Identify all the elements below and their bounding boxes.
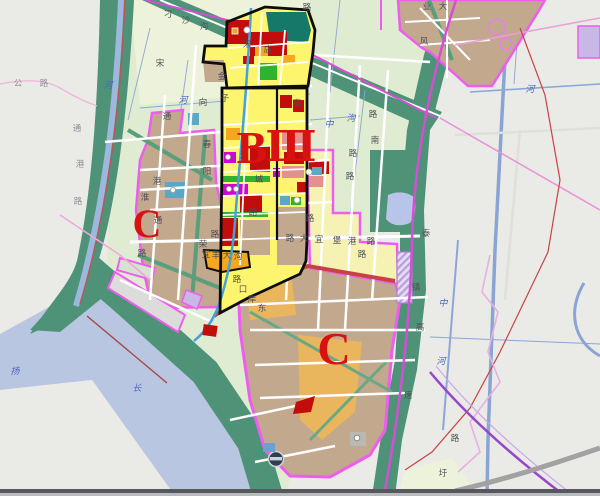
road-label-34: 路 [367, 236, 376, 246]
road-label-52: 泰 [422, 228, 431, 238]
map-rect [240, 220, 270, 255]
road-label-3: 港 [76, 159, 85, 169]
road-label-27: 路 [211, 229, 220, 239]
zone-label-C-west: C [133, 201, 162, 246]
road-label-39: 口 [239, 284, 248, 294]
road-label-33: 港 [348, 236, 357, 246]
lavender-block-ne [578, 26, 600, 58]
canal-label-zhong-2: 中 [324, 119, 334, 129]
road-label-55: 圩 [439, 468, 448, 478]
road-label-41: 东 [258, 303, 267, 313]
zone-label-C-south: C [317, 323, 350, 374]
road-label-43: 路 [306, 213, 315, 223]
map-rect [283, 55, 295, 63]
red-block-field [202, 324, 217, 337]
road-label-14: 路 [303, 2, 312, 12]
road-label-56: 路 [451, 433, 460, 443]
road-label-16: 高 [293, 98, 302, 108]
road-label-32: 堡 [333, 235, 342, 245]
road-label-38: 沟 [234, 251, 243, 261]
road-label-4: 路 [74, 196, 83, 206]
road-label-46: 路 [369, 109, 378, 119]
canal-label-gou: 沟 [346, 113, 356, 123]
road-label-0: 公 [14, 78, 23, 88]
facility-icon [294, 197, 300, 203]
road-label-13: 店 [264, 44, 273, 54]
road-label-50: 高 [416, 322, 425, 332]
map-canvas[interactable]: 公路通港路刁沙沟宋向金子宋店路业高春阳通淮港通路江城路路荣路大宜堡港路宜丰大沟口… [0, 0, 600, 496]
road-label-26: 路 [249, 207, 258, 217]
map-rect [280, 95, 292, 108]
road-label-5: 刁 [164, 9, 173, 19]
road-label-21: 港 [153, 176, 162, 186]
road-label-53: 大 [439, 1, 448, 11]
road-label-30: 大 [300, 233, 309, 243]
facility-icon [244, 27, 250, 33]
road-label-23: 路 [138, 248, 147, 258]
road-label-18: 阳 [203, 166, 212, 176]
road-label-7: 沟 [200, 21, 209, 31]
road-label-10: 金 [218, 71, 227, 81]
road-label-44: 路 [346, 171, 355, 181]
road-label-12: 宋 [243, 39, 252, 49]
road-label-49: 镇 [412, 282, 421, 292]
facility-icon [226, 186, 231, 191]
zone-label-III: Ⅲ [265, 125, 316, 171]
road-label-42: 路 [233, 274, 242, 284]
port-anchor-icon [269, 452, 284, 467]
river-label-chang: 长 [132, 383, 142, 393]
road-label-17: 春 [203, 139, 212, 149]
facility-icon [170, 187, 175, 192]
road-label-51: 速 [404, 390, 413, 400]
road-label-40: 岸 [248, 294, 257, 304]
road-label-25: 城 [255, 174, 264, 184]
map-rect [0, 489, 600, 493]
road-label-1: 路 [40, 78, 49, 88]
road-label-15: 业 [423, 1, 432, 11]
park-lake [386, 192, 415, 225]
road-label-9: 向 [199, 97, 208, 107]
road-label-11: 子 [221, 93, 230, 103]
river-label-yang: 扬 [10, 366, 20, 376]
road-label-29: 路 [286, 233, 295, 243]
road-label-19: 通 [163, 111, 172, 121]
zone-label-B: B [237, 122, 268, 173]
road-label-54: 风 [420, 36, 429, 46]
canal-label-zhong: 中 [438, 298, 448, 308]
planning-map-viewport[interactable]: 公路通港路刁沙沟宋向金子宋店路业高春阳通淮港通路江城路路荣路大宜堡港路宜丰大沟口… [0, 0, 600, 496]
road-label-45: 路 [349, 148, 358, 158]
road-label-36: 丰 [212, 250, 221, 260]
bottom-bar [0, 489, 600, 496]
facility-icon [233, 186, 238, 191]
road-label-6: 沙 [182, 15, 191, 25]
road-label-31: 宜 [315, 234, 324, 244]
road-label-2: 通 [73, 123, 82, 133]
map-rect [270, 457, 282, 460]
road-label-35: 宜 [202, 249, 211, 259]
road-label-8: 宋 [156, 58, 165, 68]
road-label-37: 大 [223, 250, 232, 260]
road-label-47: 南 [371, 135, 380, 145]
facility-icon [232, 28, 238, 34]
road-label-48: 路 [358, 249, 367, 259]
map-rect [280, 196, 290, 205]
facility-icon [354, 435, 360, 441]
road-label-28: 荣 [199, 239, 208, 249]
pond-small [263, 443, 275, 452]
map-rect [309, 176, 325, 187]
facility-icon [225, 154, 230, 159]
